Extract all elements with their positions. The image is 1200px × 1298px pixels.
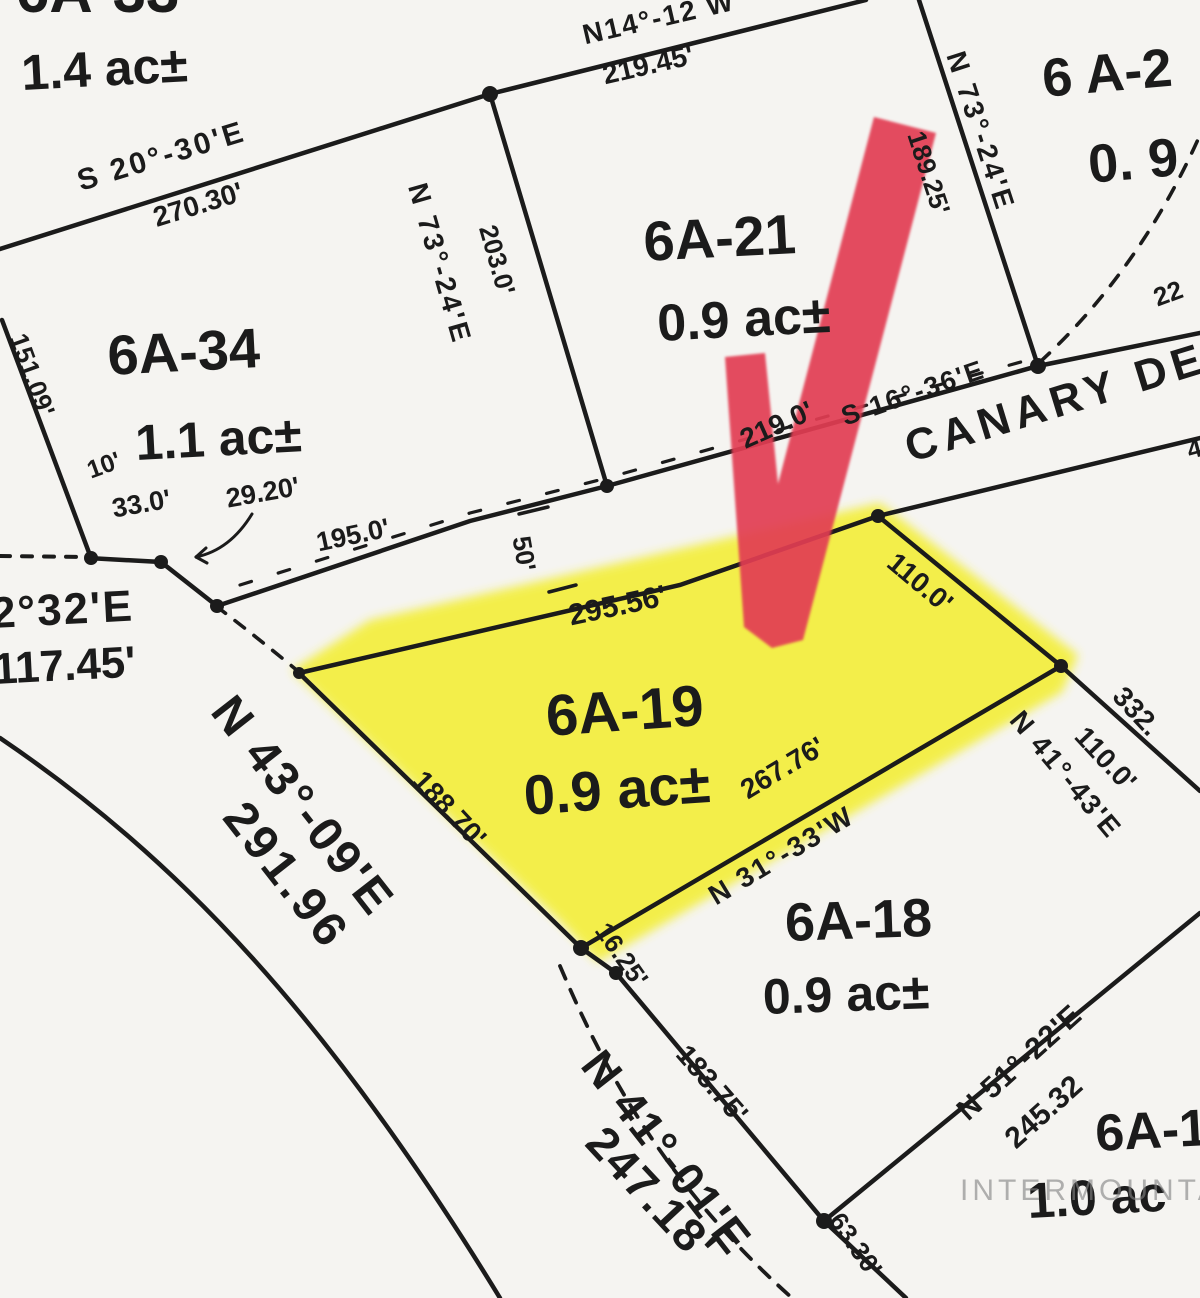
area-6a19: 0.9 ac± bbox=[522, 755, 712, 824]
survey-corner-dot bbox=[573, 940, 589, 956]
bearing-2-32e: 2°32'E bbox=[0, 585, 135, 636]
survey-corner-dot bbox=[210, 599, 224, 613]
watermark: INTERMOUNTAIN bbox=[960, 1174, 1200, 1208]
survey-corner-dot bbox=[600, 479, 614, 493]
survey-corner-dot bbox=[871, 509, 885, 523]
survey-corner-dot bbox=[1054, 659, 1068, 673]
survey-corner-dot bbox=[482, 86, 498, 102]
parcel-6a2x: 6 A-2 bbox=[1040, 41, 1174, 106]
survey-corner-dot bbox=[1030, 358, 1046, 374]
area-6a21: 0.9 ac± bbox=[656, 289, 832, 350]
survey-corner-dot bbox=[154, 555, 168, 569]
area-6a18: 0.9 ac± bbox=[762, 966, 930, 1022]
survey-corner-dot bbox=[293, 667, 305, 679]
dist-50: 50' bbox=[508, 534, 540, 573]
area-6a34: 1.1 ac± bbox=[134, 409, 303, 468]
parcel-6a34: 6A-34 bbox=[106, 320, 261, 384]
area-6a2x: 0. 9 bbox=[1086, 130, 1180, 192]
boundary-line bbox=[0, 556, 88, 557]
parcel-6a1x: 6A-1 bbox=[1094, 1102, 1200, 1160]
parcel-6a21: 6A-21 bbox=[642, 206, 797, 270]
plat-map: 6A-331.4 ac±6A-341.1 ac±6A-210.9 ac±6A-1… bbox=[0, 0, 1200, 1298]
parcel-6a18: 6A-18 bbox=[784, 891, 933, 950]
boundary-line bbox=[216, 606, 299, 672]
area-6a33: 1.4 ac± bbox=[20, 39, 189, 98]
parcel-6a19: 6A-19 bbox=[544, 677, 706, 746]
dist-117-45: 117.45' bbox=[0, 641, 137, 692]
parcel-6a33: 6A-33 bbox=[16, 0, 179, 22]
survey-corner-dot bbox=[84, 551, 98, 565]
boundary-line bbox=[196, 557, 207, 563]
